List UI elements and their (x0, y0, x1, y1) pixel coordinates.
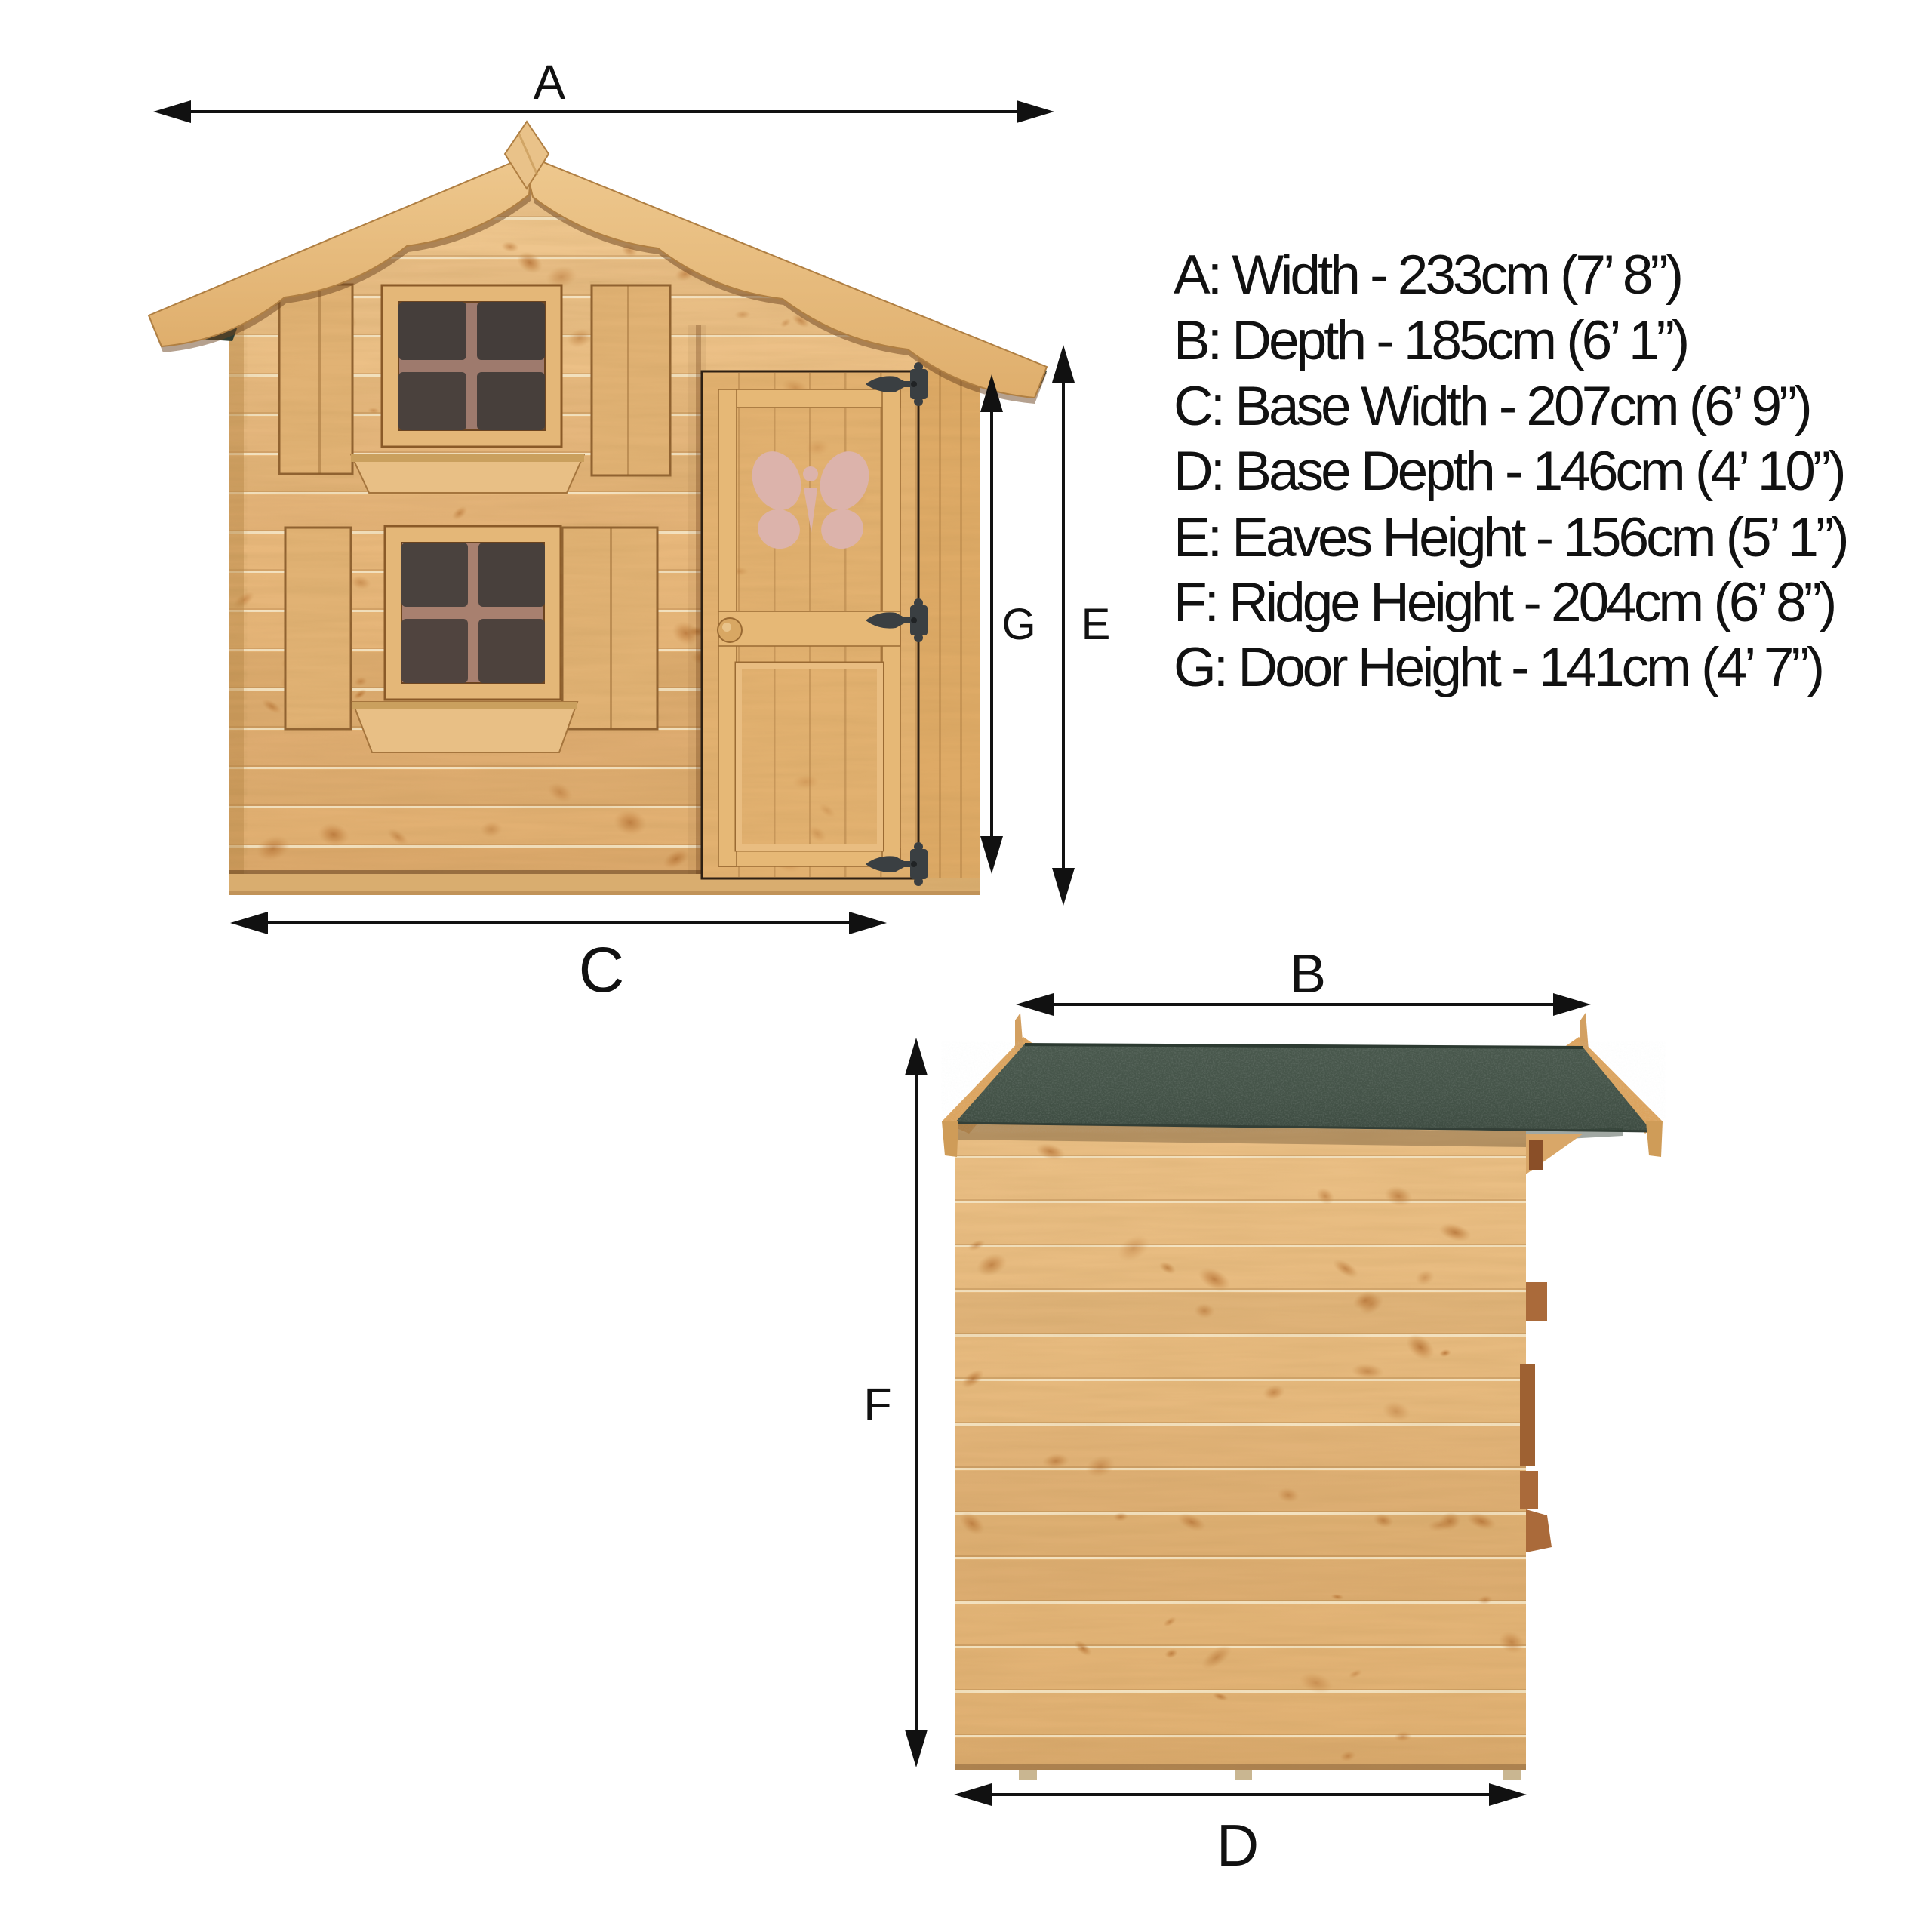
svg-text:B: Depth - 185cm (6’ 1”): B: Depth - 185cm (6’ 1”) (1174, 310, 1687, 371)
svg-text:F: Ridge Height - 204cm (6’ 8”: F: Ridge Height - 204cm (6’ 8”) (1174, 572, 1834, 633)
svg-text:F: F (863, 1379, 891, 1430)
svg-text:E: Eaves Height - 156cm (5’ 1”: E: Eaves Height - 156cm (5’ 1”) (1174, 507, 1847, 568)
svg-text:A: Width - 233cm (7’ 8”): A: Width - 233cm (7’ 8”) (1174, 245, 1681, 306)
svg-text:C: Base Width - 207cm (6’ 9”): C: Base Width - 207cm (6’ 9”) (1174, 376, 1810, 437)
svg-text:G: Door Height - 141cm (4’ 7”): G: Door Height - 141cm (4’ 7”) (1174, 637, 1822, 698)
svg-text:E: E (1081, 600, 1111, 649)
svg-text:D: Base Depth - 146cm (4’ 10”): D: Base Depth - 146cm (4’ 10”) (1174, 441, 1844, 502)
svg-text:C: C (579, 934, 625, 1005)
svg-text:D: D (1217, 1812, 1259, 1878)
svg-text:G: G (1001, 600, 1035, 649)
svg-text:A: A (534, 55, 566, 109)
svg-text:B: B (1290, 944, 1326, 1004)
